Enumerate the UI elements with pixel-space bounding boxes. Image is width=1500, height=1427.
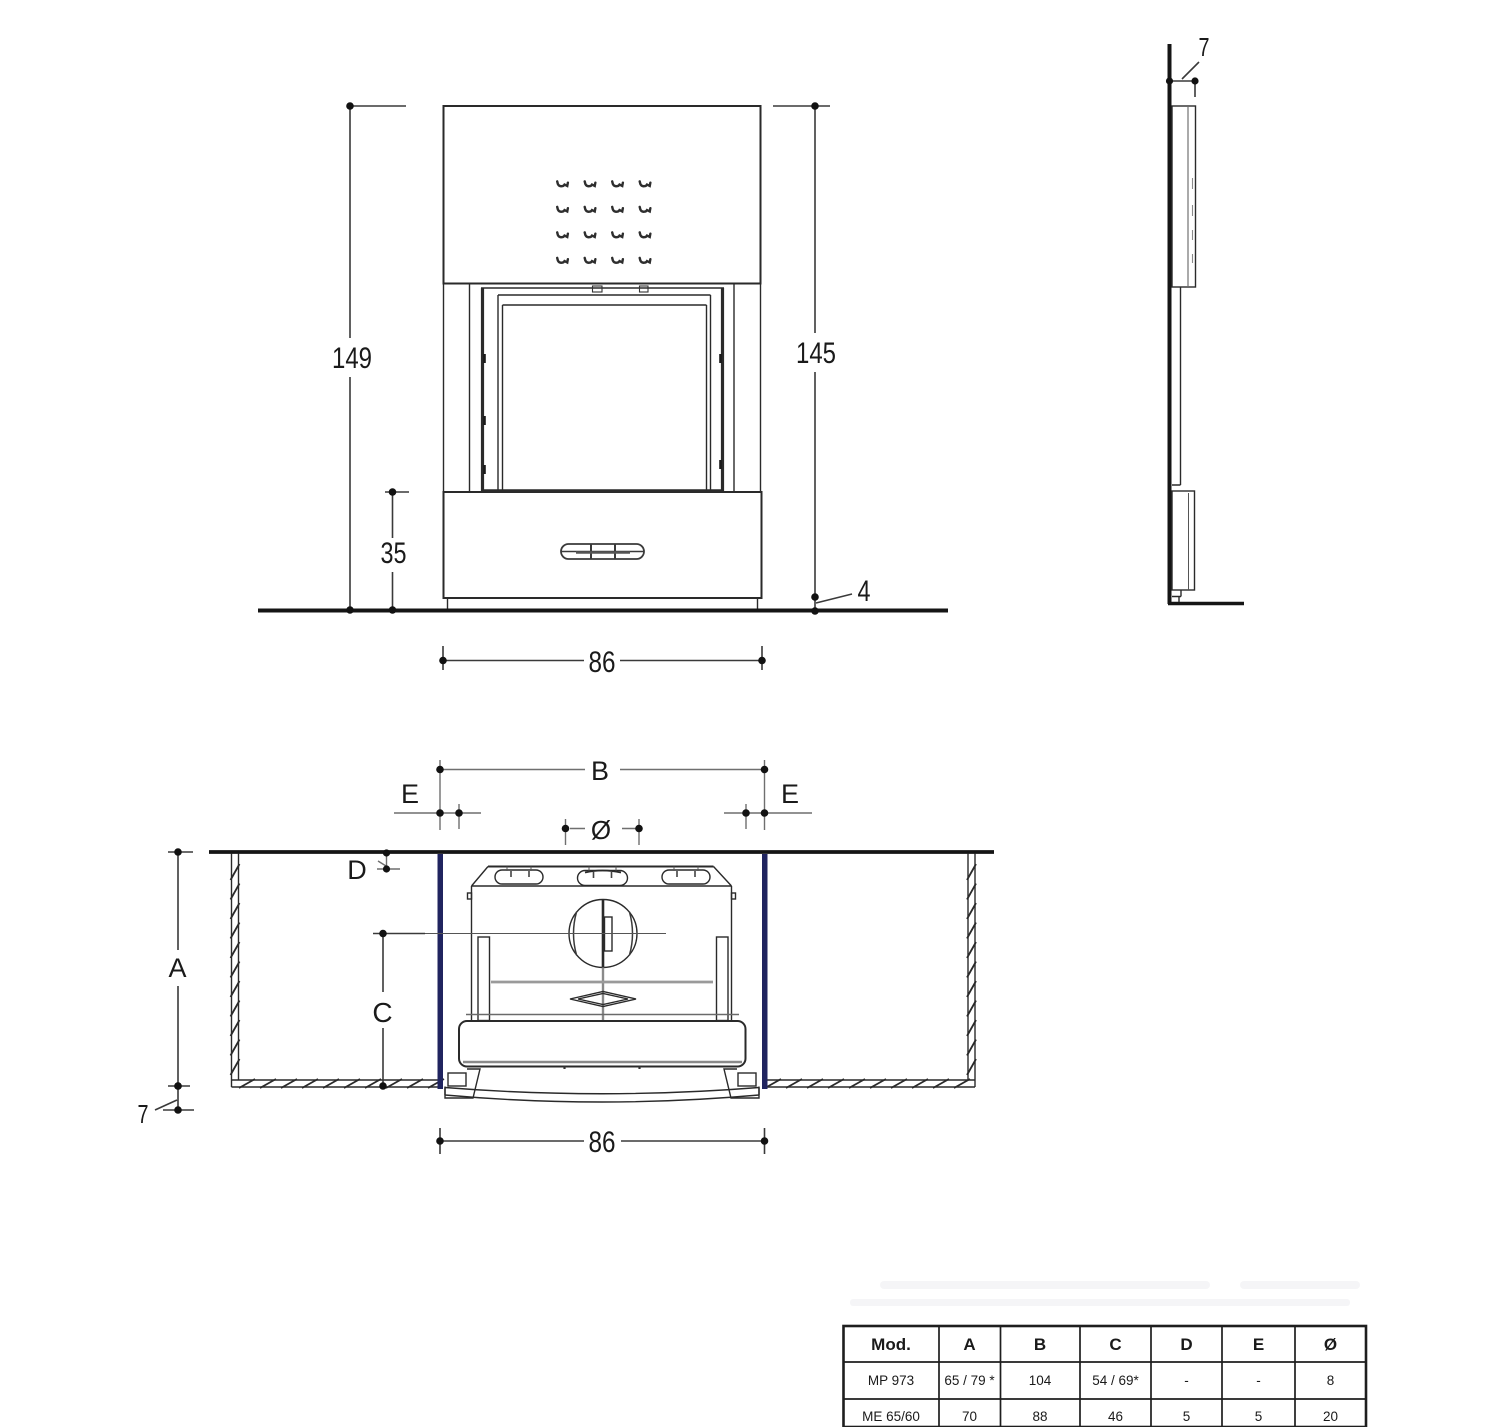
svg-text:46: 46	[1108, 1409, 1123, 1424]
svg-text:20: 20	[1323, 1409, 1338, 1424]
svg-text:E: E	[401, 779, 419, 809]
svg-text:5: 5	[1255, 1409, 1263, 1424]
svg-text:MP 973: MP 973	[868, 1373, 914, 1388]
svg-text:8: 8	[1327, 1373, 1335, 1388]
svg-text:C: C	[372, 997, 392, 1028]
svg-text:ME 65/60: ME 65/60	[862, 1409, 920, 1424]
svg-text:149: 149	[332, 342, 372, 375]
svg-text:145: 145	[796, 337, 836, 370]
svg-text:A: A	[168, 953, 186, 983]
svg-text:5: 5	[1183, 1409, 1191, 1424]
svg-text:E: E	[781, 779, 799, 809]
svg-text:B: B	[1034, 1335, 1046, 1354]
svg-text:86: 86	[589, 646, 616, 679]
svg-text:-: -	[1256, 1373, 1261, 1388]
svg-text:35: 35	[381, 537, 407, 570]
svg-text:86: 86	[589, 1126, 616, 1159]
svg-text:Ø: Ø	[591, 815, 611, 845]
svg-text:70: 70	[962, 1409, 977, 1424]
svg-text:A: A	[963, 1335, 975, 1354]
svg-text:Ø: Ø	[1324, 1335, 1337, 1354]
svg-text:104: 104	[1029, 1373, 1052, 1388]
svg-text:54 / 69*: 54 / 69*	[1092, 1373, 1139, 1388]
svg-text:B: B	[591, 756, 609, 786]
svg-text:Mod.: Mod.	[871, 1335, 911, 1354]
svg-text:4: 4	[858, 575, 871, 608]
svg-text:E: E	[1253, 1335, 1264, 1354]
svg-text:7: 7	[1199, 32, 1210, 62]
svg-text:65 / 79 *: 65 / 79 *	[944, 1373, 995, 1388]
svg-text:-: -	[1184, 1373, 1189, 1388]
svg-text:88: 88	[1032, 1409, 1047, 1424]
svg-text:7: 7	[138, 1099, 149, 1129]
svg-text:D: D	[347, 855, 367, 885]
svg-text:D: D	[1180, 1335, 1192, 1354]
svg-text:C: C	[1109, 1335, 1121, 1354]
